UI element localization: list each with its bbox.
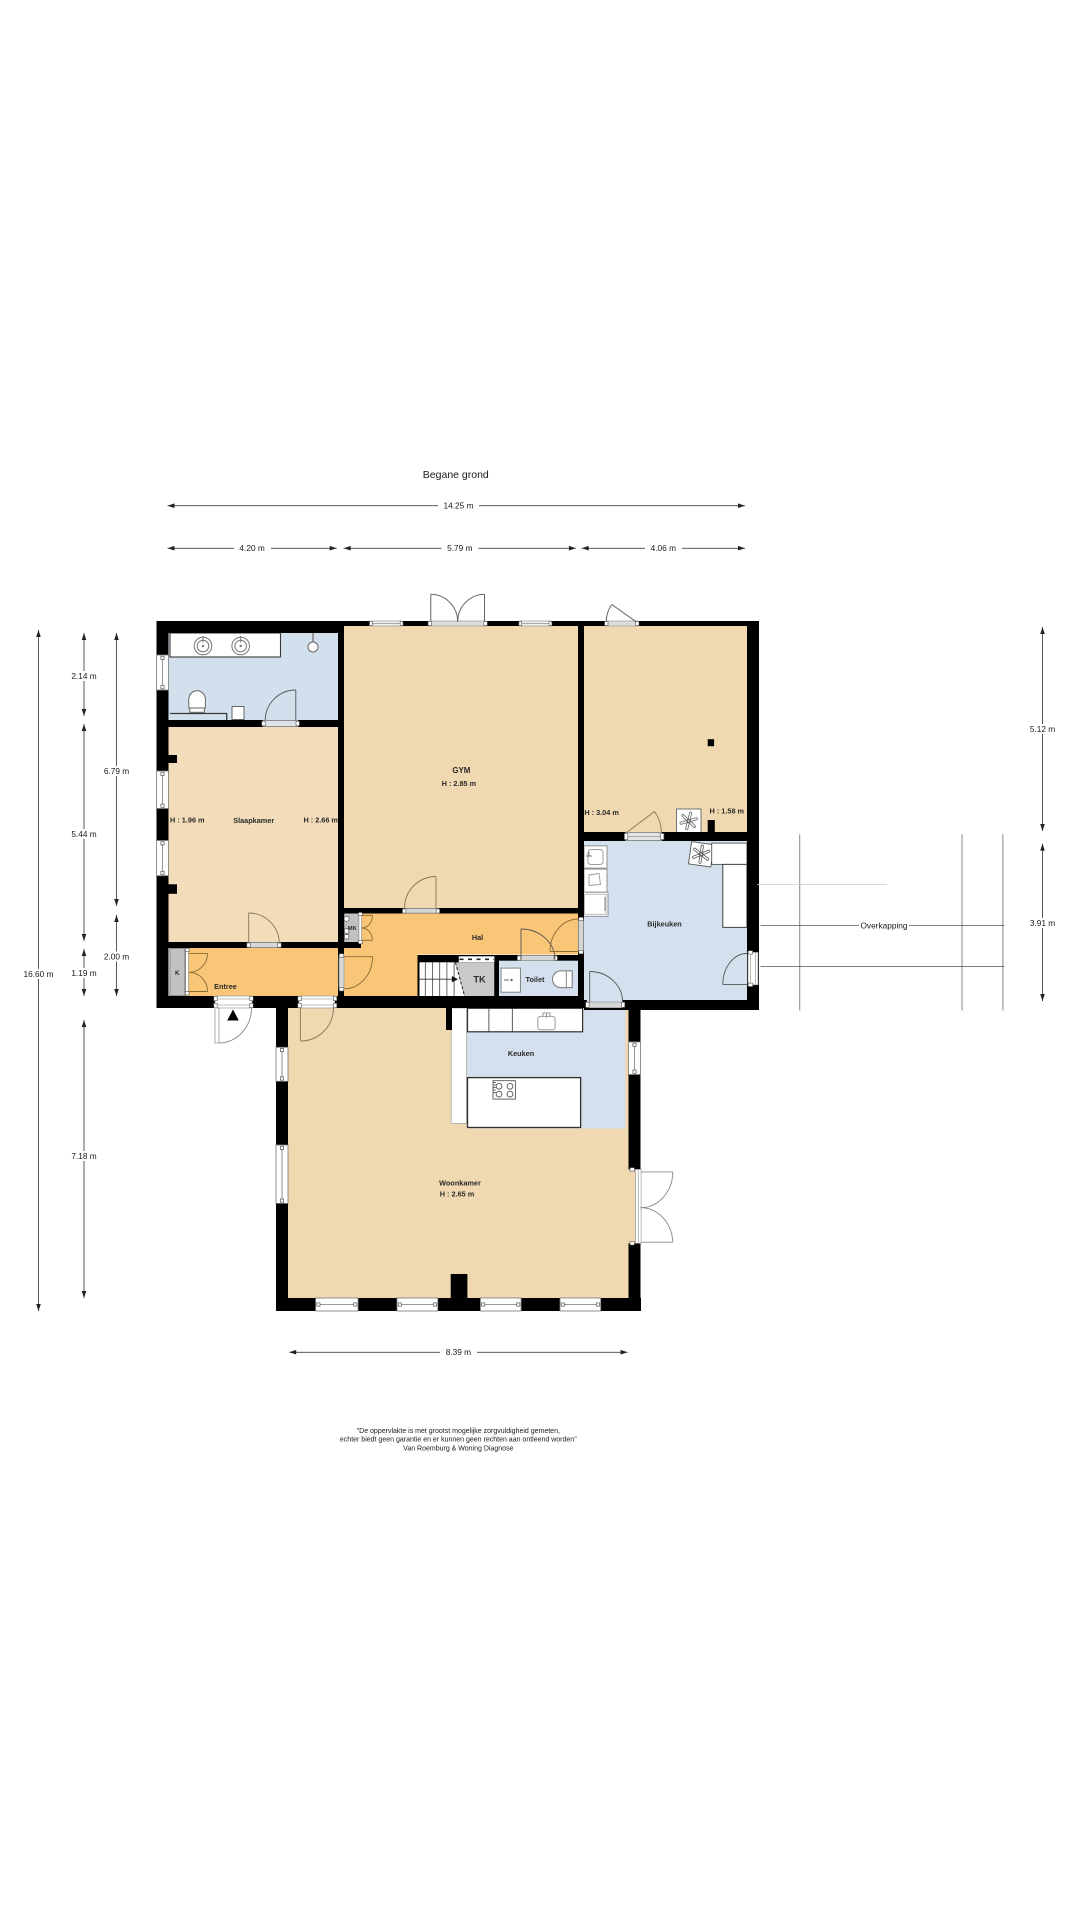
- svg-text:16.60 m: 16.60 m: [24, 969, 54, 979]
- svg-text:Hal: Hal: [472, 933, 483, 942]
- svg-text:7.18 m: 7.18 m: [71, 1151, 96, 1161]
- svg-text:H : 3.04 m: H : 3.04 m: [584, 808, 619, 817]
- svg-text:"De oppervlakte is met grootst: "De oppervlakte is met grootst mogelijke…: [357, 1428, 560, 1435]
- svg-text:2.00 m: 2.00 m: [104, 952, 129, 962]
- svg-text:H : 2.65 m: H : 2.65 m: [440, 1190, 475, 1199]
- svg-text:Begane grond: Begane grond: [423, 469, 489, 481]
- svg-text:8.39 m: 8.39 m: [446, 1347, 471, 1357]
- svg-text:Van Roemburg & Woning Diagnose: Van Roemburg & Woning Diagnose: [403, 1445, 513, 1452]
- svg-text:Slaapkamer: Slaapkamer: [233, 816, 274, 825]
- svg-text:Toilet: Toilet: [526, 975, 545, 984]
- svg-text:K: K: [175, 970, 180, 977]
- svg-text:2.14 m: 2.14 m: [71, 671, 96, 681]
- svg-text:H : 2.66 m: H : 2.66 m: [303, 816, 338, 825]
- svg-text:Bijkeuken: Bijkeuken: [647, 920, 681, 929]
- svg-text:5.79 m: 5.79 m: [447, 543, 472, 553]
- svg-text:1.19 m: 1.19 m: [71, 968, 96, 978]
- svg-text:Overkapping: Overkapping: [860, 920, 907, 930]
- svg-text:Woonkamer: Woonkamer: [439, 1178, 481, 1187]
- svg-text:4.06 m: 4.06 m: [651, 543, 676, 553]
- svg-text:GYM: GYM: [452, 766, 470, 775]
- svg-text:14.25 m: 14.25 m: [444, 501, 474, 511]
- svg-text:H : 1.58 m: H : 1.58 m: [710, 807, 745, 816]
- svg-text:5.44 m: 5.44 m: [71, 829, 96, 839]
- svg-text:Entree: Entree: [214, 982, 237, 991]
- svg-text:echter biedt geen garantie en: echter biedt geen garantie en er kunnen …: [340, 1437, 577, 1444]
- svg-text:Keuken: Keuken: [508, 1049, 534, 1058]
- svg-text:4.20 m: 4.20 m: [239, 543, 264, 553]
- svg-text:3.91 m: 3.91 m: [1030, 918, 1055, 928]
- svg-text:5.12 m: 5.12 m: [1030, 724, 1055, 734]
- svg-text:H : 1.96 m: H : 1.96 m: [170, 816, 205, 825]
- svg-text:TK: TK: [473, 975, 486, 985]
- svg-text:MK: MK: [348, 926, 358, 932]
- svg-text:H : 2.85 m: H : 2.85 m: [442, 779, 477, 788]
- svg-text:6.79 m: 6.79 m: [104, 766, 129, 776]
